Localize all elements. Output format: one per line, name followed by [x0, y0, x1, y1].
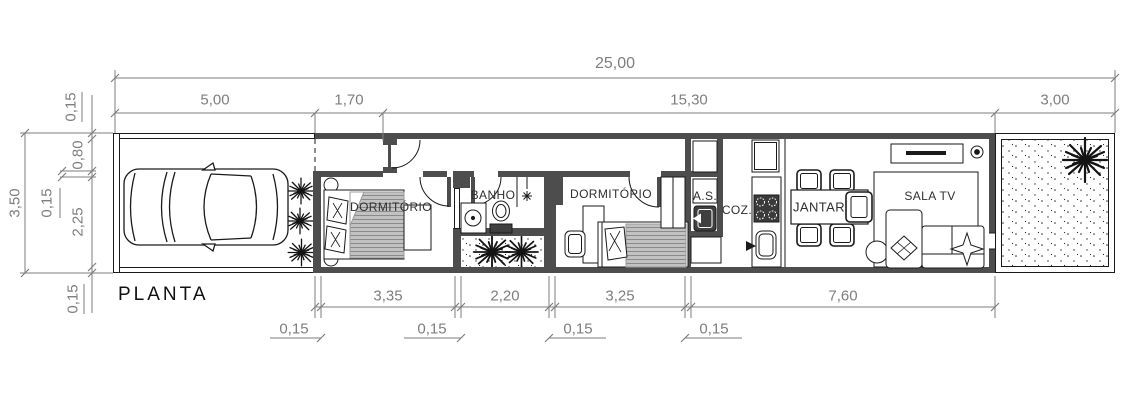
- left-wall: [313, 171, 321, 273]
- room-label-dormitorio-1: DORMITÓRIO: [350, 200, 432, 214]
- room-label-coz: COZ.: [722, 203, 752, 217]
- living-room-furniture: [866, 144, 984, 268]
- room-label-banho: BANHO: [471, 188, 516, 202]
- toilet-tank: [490, 224, 512, 233]
- car-topview-icon: [124, 163, 288, 251]
- banho-dorm2-wall: [544, 171, 556, 267]
- bush-icon: [287, 208, 313, 234]
- wall-pier: [453, 171, 470, 188]
- dim-hall-depth: 0,80: [70, 140, 87, 169]
- dorm1-furniture: [324, 178, 431, 266]
- cabinet-icon: [691, 237, 721, 263]
- dim-dorm2-width: 3,25: [605, 288, 634, 305]
- dim-living-width: 7,60: [828, 288, 857, 305]
- side-table-icon: [866, 241, 888, 263]
- shower-head-icon: [522, 177, 532, 201]
- dim-banho-width: 2,20: [490, 288, 519, 305]
- floor-plan-drawing: [0, 0, 1136, 408]
- room-label-sala-tv: SALA TV: [904, 189, 955, 203]
- dorm2-door-leaf: [657, 177, 661, 207]
- dim-wall-4: 0,15: [699, 321, 728, 338]
- dim-inner-wall: 0,15: [39, 188, 56, 217]
- room-label-jantar: JANTAR: [793, 200, 845, 215]
- side-bushes: [287, 178, 315, 266]
- dim-garage-width: 5,00: [200, 92, 229, 109]
- dim-wall-1: 0,15: [279, 321, 308, 338]
- dim-wall-3: 0,15: [563, 321, 592, 338]
- entry-door-leaf: [388, 145, 391, 168]
- bush-icon: [288, 178, 314, 204]
- tv-screen: [906, 151, 946, 155]
- shelf-box: [693, 141, 717, 172]
- thin-partition: [455, 189, 460, 229]
- dim-house-width: 15,30: [670, 92, 708, 109]
- page-title: PLANTA: [118, 284, 209, 306]
- bush-icon: [288, 239, 315, 266]
- dim-bottom-wall: 0,15: [65, 284, 82, 313]
- bed-blanket: [626, 224, 686, 267]
- entry-jamb: [383, 139, 397, 145]
- dim-overall-width: 25,00: [595, 55, 635, 73]
- floor-plan-page: 25,00 5,00 1,70 15,30 3,00 0,15 3,50 0,8…: [0, 0, 1136, 408]
- fridge-icon: [752, 140, 779, 172]
- dim-wall-2: 0,15: [417, 321, 446, 338]
- as-right-wall: [717, 139, 723, 237]
- dim-garden-width: 3,00: [1040, 92, 1069, 109]
- garden-door-opening: [989, 233, 995, 249]
- right-garden: [996, 134, 1115, 273]
- dim-top-wall: 0,15: [63, 92, 80, 121]
- dim-dorm1-width: 3,35: [373, 288, 402, 305]
- top-wall: [315, 133, 995, 139]
- dorm1-door-leaf: [447, 177, 451, 207]
- dim-rooms-depth: 2,25: [70, 207, 87, 236]
- right-wall: [989, 133, 995, 273]
- dim-total-depth: 3,50: [7, 188, 24, 217]
- room-label-dormitorio-2: DORMITÓRIO: [570, 187, 652, 201]
- room-label-as: A.S.: [693, 189, 717, 203]
- dim-entry-width: 1,70: [334, 92, 363, 109]
- bath-garden-patch: [461, 234, 544, 271]
